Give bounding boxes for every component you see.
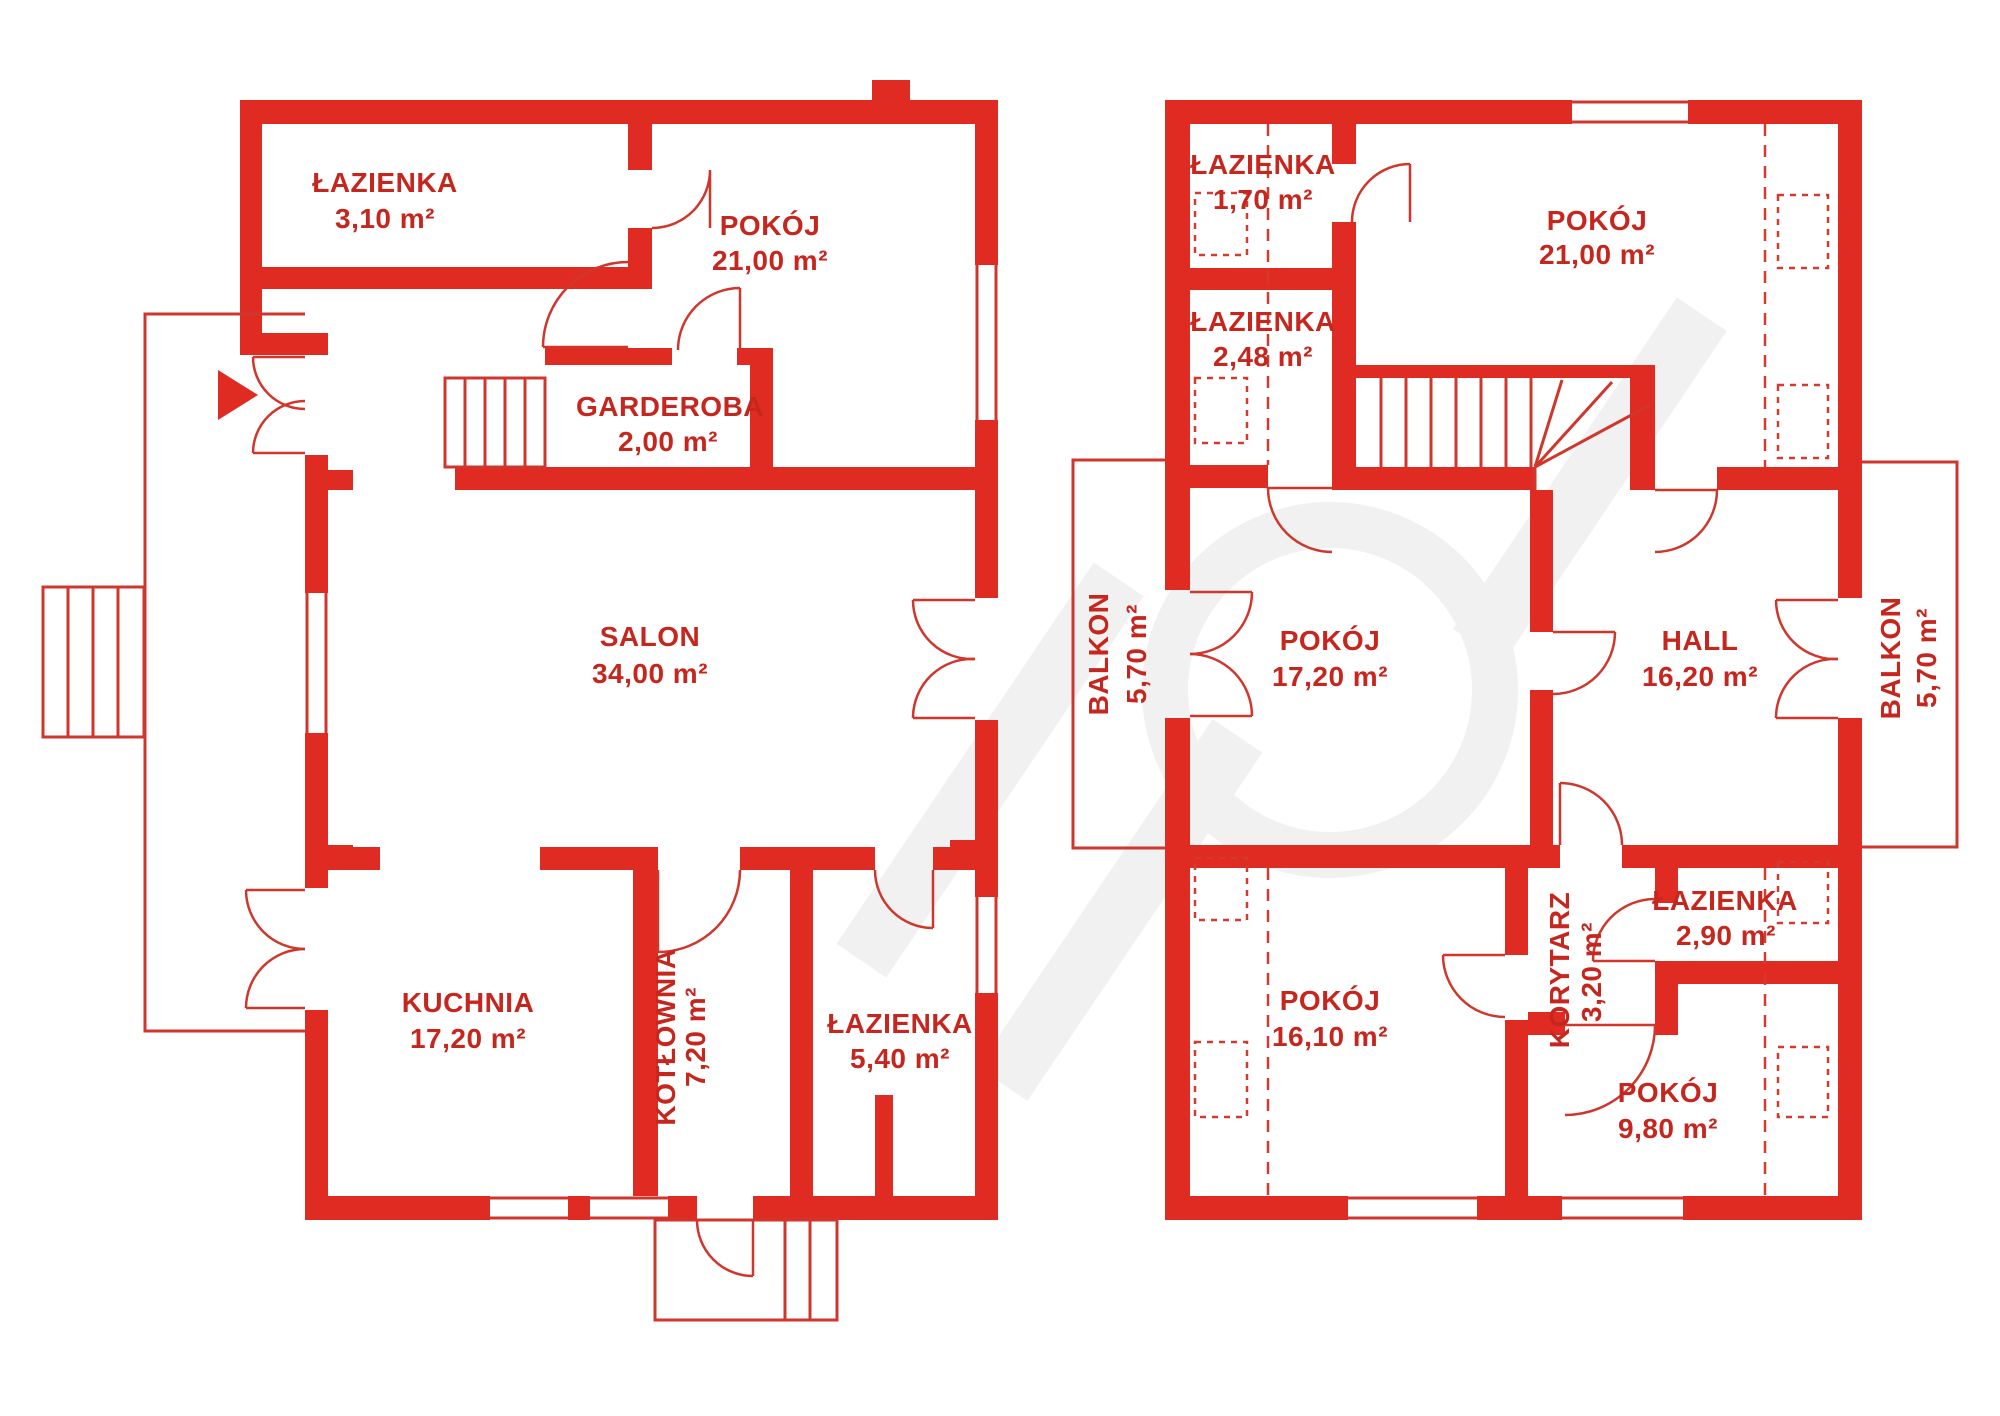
salon-area: 34,00 m²	[592, 658, 708, 689]
salon-name: SALON	[600, 621, 701, 652]
balkon-right-area: 5,70 m²	[1911, 608, 1942, 708]
uf-stair-treads	[1381, 378, 1531, 467]
gf-bath-a-door	[652, 170, 710, 228]
salon-french-door-bottom	[913, 659, 975, 718]
kuchnia-area: 17,20 m²	[410, 1023, 526, 1054]
pokoj-hall-door	[1553, 632, 1615, 694]
thin-outlines	[43, 314, 1957, 1320]
gf-lazienka-b-area: 5,40 m²	[850, 1043, 950, 1074]
fixture-box	[1195, 1042, 1247, 1117]
uf-french-door-left-bottom	[1190, 654, 1252, 716]
garderoba-area: 2,00 m²	[618, 426, 718, 457]
porch-outline	[145, 314, 305, 1031]
gf-chimney	[872, 80, 910, 102]
garderoba-name: GARDEROBA	[576, 391, 764, 422]
gf-south-window-2	[590, 1198, 668, 1218]
room-labels: ŁAZIENKA 3,10 m² POKÓJ 21,00 m² GARDEROB…	[312, 149, 1942, 1144]
kotlownia-name: KOTŁOWNIA	[650, 948, 681, 1125]
fixture-box	[1778, 385, 1828, 458]
floor-plan-canvas: ŁAZIENKA 3,10 m² POKÓJ 21,00 m² GARDEROB…	[0, 0, 2000, 1416]
uf-pokoj-a-area: 21,00 m²	[1539, 239, 1655, 270]
uf-balcony-door-bottom	[1776, 659, 1838, 718]
uf-lazienka-a-area: 1,70 m²	[1213, 184, 1313, 215]
uf-pokoj-d-area: 9,80 m²	[1618, 1113, 1718, 1144]
gf-stairs	[445, 378, 545, 467]
gf-lazienka-b-name: ŁAZIENKA	[827, 1008, 973, 1039]
fixture-box	[1778, 1047, 1828, 1117]
balkon-left-name: BALKON	[1083, 593, 1114, 716]
fixture-box	[1778, 195, 1828, 268]
gf-lazienka-a-area: 3,10 m²	[335, 203, 435, 234]
uf-lazienka-c-area: 2,90 m²	[1676, 920, 1776, 951]
korytarz-area: 3,20 m²	[1576, 922, 1607, 1022]
garderoba-door	[678, 288, 740, 350]
uf-lazienka-b-name: ŁAZIENKA	[1190, 306, 1336, 337]
uf-lazienka-a-name: ŁAZIENKA	[1190, 149, 1336, 180]
korytarz-name: KORYTARZ	[1544, 892, 1575, 1048]
entrance-arrow-icon	[218, 370, 258, 420]
uf-south-window-1	[1348, 1198, 1477, 1218]
korytarz-pokoj-c-door	[1443, 955, 1505, 1017]
gf-west-window	[307, 593, 326, 733]
uf-pokoj-c-name: POKÓJ	[1280, 985, 1381, 1016]
uf-pokoj-a-name: POKÓJ	[1547, 205, 1648, 236]
uf-pokoj-b-area: 17,20 m²	[1272, 661, 1388, 692]
kotlownia-exterior-door	[697, 1220, 753, 1276]
kuchnia-name: KUCHNIA	[402, 987, 535, 1018]
uf-lazienka-c-name: ŁAZIENKA	[1652, 885, 1798, 916]
uf-top-window	[1572, 102, 1688, 122]
kitchen-door-bottom	[246, 949, 305, 1008]
uf-pokoj-d-name: POKÓJ	[1618, 1077, 1719, 1108]
uf-pokoj-b-name: POKÓJ	[1280, 625, 1381, 656]
salon-french-door-top	[913, 600, 975, 659]
balkon-left-area: 5,70 m²	[1121, 604, 1152, 704]
uf-balcony-door-top	[1776, 600, 1838, 659]
korytarz-entry-door	[1560, 783, 1622, 845]
uf-bath-a-door	[1352, 164, 1410, 222]
balkon-right-name: BALKON	[1875, 597, 1906, 720]
gf-pokoj-name: POKÓJ	[720, 210, 821, 241]
gf-south-window-1	[490, 1198, 568, 1218]
hall-area: 16,20 m²	[1642, 661, 1758, 692]
kotlownia-door	[658, 870, 740, 952]
uf-south-window-2	[1562, 1198, 1683, 1218]
floor-plan-drawing: ŁAZIENKA 3,10 m² POKÓJ 21,00 m² GARDEROB…	[0, 0, 2000, 1416]
uf-lazienka-b-area: 2,48 m²	[1213, 341, 1313, 372]
gf-top-wall	[240, 100, 998, 124]
fixture-box	[1195, 378, 1247, 443]
gf-pokoj-area: 21,00 m²	[712, 245, 828, 276]
gf-east-window-bath	[977, 897, 996, 993]
kitchen-door-top	[246, 890, 305, 949]
uf-pokoj-c-area: 16,10 m²	[1272, 1021, 1388, 1052]
kotlownia-area: 7,20 m²	[680, 987, 711, 1087]
hall-pokoj-door	[1655, 490, 1717, 552]
uf-stair-top-wall	[1356, 365, 1655, 378]
gf-east-window-pokoj	[977, 265, 996, 420]
hall-name: HALL	[1662, 625, 1739, 656]
gf-lazienka-a-name: ŁAZIENKA	[312, 167, 458, 198]
